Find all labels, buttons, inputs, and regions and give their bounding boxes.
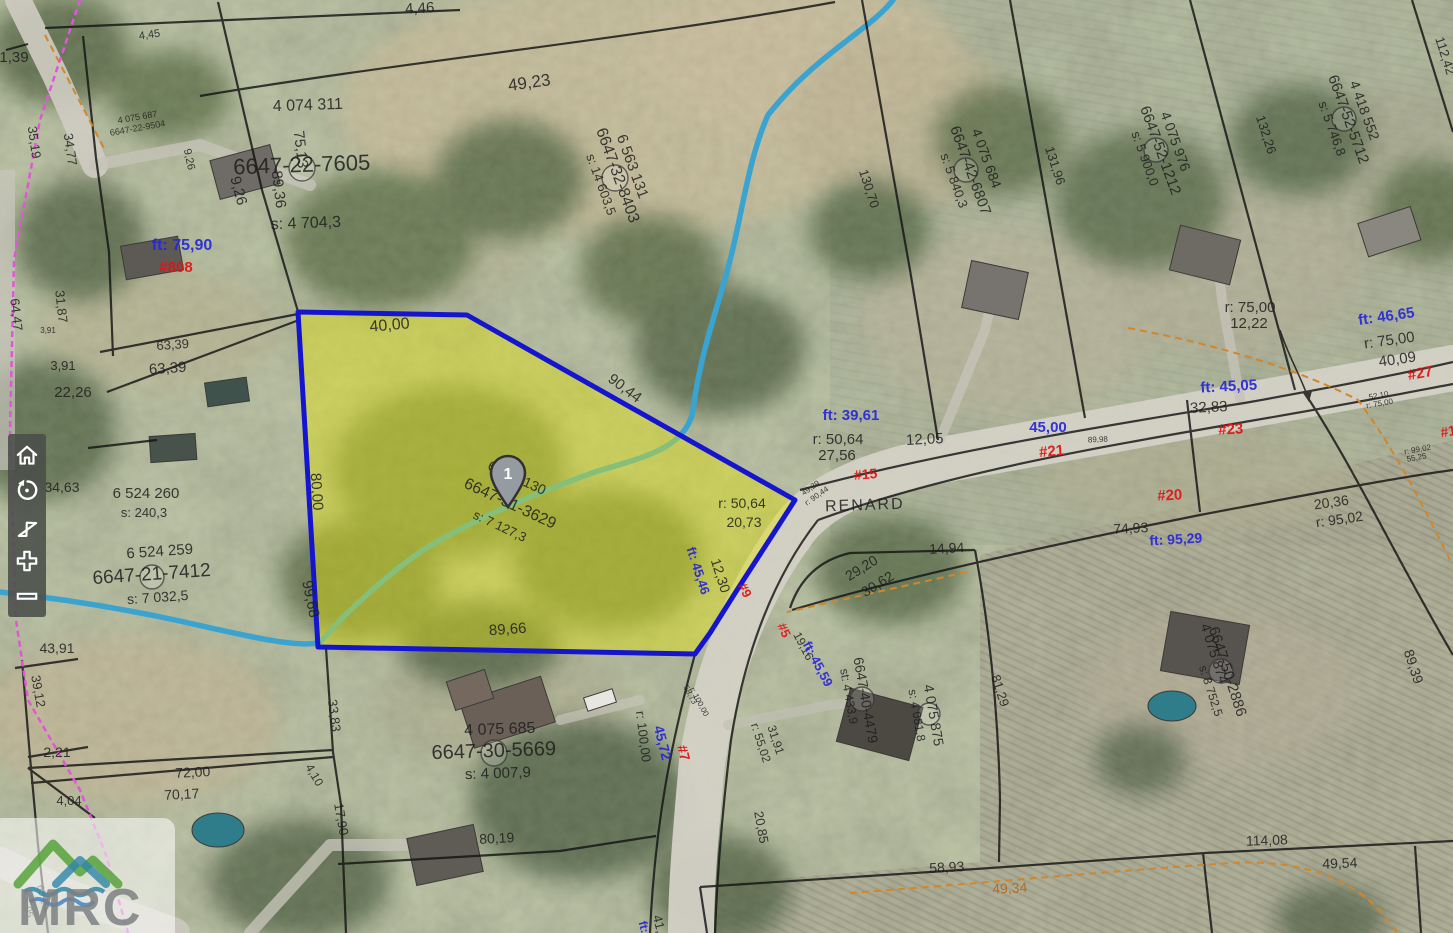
map-label: ft: 95,29 bbox=[1149, 530, 1203, 549]
map-viewport[interactable]: 1,394,454,4649,239,269,2635,1934,774 075… bbox=[0, 0, 1453, 933]
rotate-icon bbox=[14, 478, 40, 504]
map-label: ft: 45,05 bbox=[1200, 377, 1258, 397]
map-label: #23 bbox=[1218, 420, 1244, 438]
map-label: 12,22 bbox=[1230, 315, 1268, 332]
map-label: 22,26 bbox=[54, 384, 92, 401]
zoom-out-button[interactable] bbox=[10, 578, 44, 613]
map-label: 3,91 bbox=[40, 326, 56, 335]
mrc-logo: MRC bbox=[0, 818, 175, 933]
map-label: s: 4 007,9 bbox=[465, 764, 531, 783]
map-label: r: 50,64 bbox=[718, 495, 766, 511]
map-label: #1 bbox=[1439, 422, 1453, 440]
map-label: ft: bbox=[636, 920, 652, 933]
map-label: 1,39 bbox=[0, 49, 29, 66]
map-label: #808 bbox=[159, 259, 192, 276]
map-label: 6 524 260 bbox=[113, 485, 180, 502]
map-label: 4 074 311 bbox=[273, 96, 344, 115]
map-label: s: 4 704,3 bbox=[270, 214, 341, 233]
mrc-logo-text: MRC bbox=[18, 878, 142, 933]
map-label: 89,98 bbox=[1088, 434, 1109, 444]
map-label: 4,04 bbox=[56, 793, 81, 808]
map-label: 72,00 bbox=[175, 763, 211, 781]
zoom-in-button[interactable] bbox=[10, 543, 44, 578]
map-label: 40,00 bbox=[369, 315, 410, 335]
marker-number: 1 bbox=[504, 466, 513, 483]
map-label: 12,05 bbox=[906, 430, 944, 449]
minus-icon bbox=[14, 583, 40, 609]
map-label: 63,39 bbox=[156, 336, 190, 353]
map-label: r: 50,64 bbox=[813, 431, 864, 448]
map-label: 80,00 bbox=[307, 472, 327, 511]
map-label: 45,00 bbox=[1029, 419, 1067, 436]
map-canvas: 1,394,454,4649,239,269,2635,1934,774 075… bbox=[0, 0, 1453, 933]
map-label: 6647-30-5669 bbox=[431, 738, 556, 764]
map-label: #20 bbox=[1157, 486, 1183, 504]
map-label: 74,93 bbox=[1113, 519, 1149, 537]
map-label: 34,63 bbox=[44, 479, 79, 495]
map-label: 89,66 bbox=[488, 620, 527, 640]
map-toolbar bbox=[8, 434, 46, 617]
map-label: 32,83 bbox=[1190, 398, 1228, 417]
map-label: 2,21 bbox=[43, 744, 70, 760]
map-label: 4,46 bbox=[405, 0, 435, 18]
map-label: 63,39 bbox=[148, 359, 187, 379]
map-label: 3,91 bbox=[50, 358, 75, 373]
map-label: 14,94 bbox=[929, 539, 965, 557]
map-label: #21 bbox=[1038, 442, 1064, 461]
home-icon bbox=[14, 443, 40, 469]
map-label: 4 075 685 bbox=[464, 720, 536, 739]
map-label: RENARD bbox=[825, 496, 905, 516]
locate-button[interactable] bbox=[10, 508, 44, 543]
map-label: 114,08 bbox=[1246, 831, 1289, 848]
map-label: r: 75,00 bbox=[1225, 299, 1276, 316]
home-button[interactable] bbox=[10, 438, 44, 473]
location-arrow-icon bbox=[14, 513, 40, 539]
map-label: 43,91 bbox=[39, 640, 74, 656]
plus-icon bbox=[14, 548, 40, 574]
map-label: 70,17 bbox=[164, 785, 200, 803]
map-label: 20,73 bbox=[726, 514, 761, 530]
rotate-button[interactable] bbox=[10, 473, 44, 508]
map-label: ft: 39,61 bbox=[823, 407, 880, 424]
map-label: 49,34 bbox=[992, 879, 1028, 897]
map-label: #15 bbox=[853, 465, 878, 483]
map-label: 49,54 bbox=[1322, 854, 1358, 871]
map-label: 80,19 bbox=[479, 829, 515, 847]
map-label: 58,93 bbox=[929, 858, 965, 876]
map-label: s: 240,3 bbox=[121, 505, 167, 520]
map-label: 27,56 bbox=[818, 447, 856, 464]
map-label: ft: 75,90 bbox=[152, 237, 213, 254]
